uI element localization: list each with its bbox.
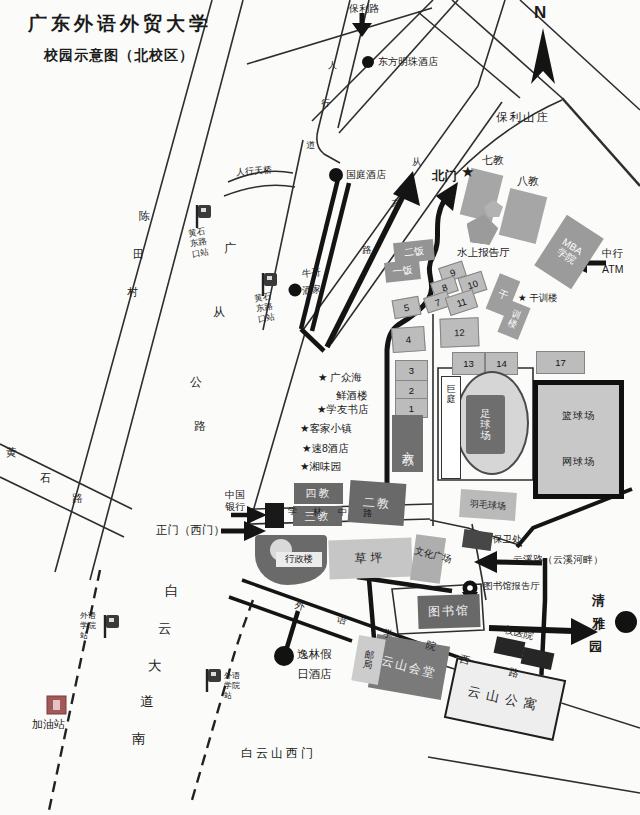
- atm-label-1: 中行: [602, 247, 623, 259]
- building-13: 13: [452, 352, 485, 375]
- huangshi-char-1: 黄: [6, 446, 17, 459]
- southeast-road-line2: [428, 757, 640, 793]
- boc-label-1: 中国: [225, 489, 245, 501]
- page-subtitle: 校园示意图（北校区）: [44, 47, 194, 63]
- star-restaurant-line2: 鲜酒楼: [336, 389, 368, 401]
- wstop1-row2: 学院: [80, 621, 96, 631]
- guangcong-char-4: 路: [194, 420, 206, 434]
- badminton-court: 羽毛球场: [459, 489, 517, 521]
- ne-road-char-3: 路: [362, 245, 372, 256]
- niuge-label-1: 牛哥: [301, 267, 321, 280]
- chentian-char-1: 陈: [139, 210, 150, 223]
- star-hakka-town: ★客家小镇: [300, 422, 351, 434]
- gas-station-icon: [47, 696, 66, 714]
- building-4-teaching: 四教: [294, 483, 343, 504]
- building-17: 17: [536, 351, 585, 374]
- building-3n: 3: [395, 360, 428, 381]
- wstop2-row2: 学院: [224, 681, 240, 691]
- library-hall-label: 图书馆报告厅: [483, 581, 540, 592]
- building-13-label: 13: [463, 358, 474, 369]
- yunshan-apt-label: 云山公寓: [466, 682, 544, 715]
- lawn-area: 草坪: [328, 538, 412, 580]
- building-2-teaching: 二教: [348, 480, 407, 526]
- water-hall-label: 水上报告厅: [457, 246, 510, 258]
- ganxun-star-label: ★ 干训楼: [518, 293, 558, 304]
- xuelin-char-2: 林: [313, 507, 322, 517]
- northeast-boundary-bold: [562, 98, 640, 186]
- baiyun-char-4: 道: [140, 694, 154, 710]
- building-5-label: 5: [403, 302, 410, 314]
- badminton-label: 羽毛球场: [470, 497, 507, 512]
- niuge-label-2: 酒家: [301, 284, 321, 297]
- building-17-label: 17: [555, 357, 566, 368]
- north-gate-label: 北门: [432, 169, 457, 183]
- building-4n-label: 4: [405, 334, 411, 345]
- bus-stop-icon-huangshi1: [197, 205, 211, 228]
- main-gate-label: 正门（西门）: [156, 524, 225, 537]
- huangshi-char-2: 石: [40, 472, 51, 485]
- gas-station-label: 加油站: [32, 718, 65, 731]
- baiyun-char-2: 云: [158, 621, 172, 637]
- bank-of-china-label: 中国 银行: [225, 489, 245, 513]
- route-lawn-to-road: [369, 579, 374, 638]
- baiyun-avenue-dashed-east: [192, 600, 253, 800]
- admin-building-label-box: 行政楼: [276, 552, 322, 567]
- canteen-1: 一饭: [384, 259, 421, 283]
- bus-stop-icon-waiyu-right: [207, 669, 221, 692]
- building-6-label: 六教: [401, 441, 414, 447]
- building-12-label: 12: [454, 327, 465, 338]
- huangshi-road-line1: [0, 444, 132, 509]
- guangcong-char-3: 公: [190, 376, 202, 390]
- ganxun-char-gan: 干: [496, 287, 511, 304]
- yunshan-hall-label: 云山会堂: [380, 652, 438, 682]
- dongfang-hotel-dot: [362, 56, 374, 68]
- security-office-label: 保卫处: [493, 534, 522, 545]
- xuelin-char-1: 学: [288, 506, 297, 516]
- building-7n-label: 7: [433, 296, 441, 308]
- football-field: 足 球 场: [466, 395, 505, 454]
- walkway-char-2: 行: [321, 98, 330, 108]
- building-7-text-label: 七教: [482, 154, 504, 167]
- baiyun-avenue-dashed-west: [48, 570, 100, 815]
- baoli-road-label: 保利路: [349, 3, 379, 15]
- star-bookstore: ★学友书店: [317, 403, 368, 415]
- bus-stop-waiyu-left-label: 外语 学院 站: [80, 611, 96, 640]
- guangcong-char-2: 从: [213, 306, 225, 320]
- stand-char-2: 庭: [447, 395, 456, 405]
- huangshi-char-3: 路: [72, 492, 83, 505]
- xuelin-char-3: 中: [338, 507, 347, 517]
- canteen-2-label: 二饭: [403, 243, 424, 259]
- grandstand-strip: 巨 庭: [441, 376, 461, 479]
- ganxun-char-lou: 楼: [506, 318, 518, 330]
- wstop1-row3: 站: [80, 631, 96, 641]
- yunxi-road-label: 云溪路（云溪河畔）: [513, 554, 603, 566]
- yilin-hotel-label-1: 逸林假: [297, 648, 332, 661]
- baiyun-char-5: 南: [132, 731, 146, 747]
- wstop1-row1: 外语: [80, 611, 96, 621]
- walkway-char-1: 人: [328, 60, 337, 70]
- yilin-hotel-dot: [274, 646, 294, 666]
- star-xiangweiyuan: ★湘味园: [300, 460, 341, 472]
- security-office-shape: [462, 529, 493, 551]
- building-8-text-label: 八教: [517, 175, 539, 188]
- wstop2-row1: 外语: [224, 671, 240, 681]
- baiyun-char-3: 大: [148, 658, 162, 674]
- qingya-char-2: 雅: [592, 617, 605, 632]
- guoting-hotel-label: 国庭酒店: [346, 169, 386, 181]
- star-restaurant-line1: ★ 广众海: [318, 371, 362, 383]
- canteen-1-label: 一饭: [392, 263, 413, 279]
- north-gate-star-icon: ★: [461, 163, 474, 180]
- baiyunshan-gate-label: 白云山西门: [241, 747, 316, 761]
- bank-of-china-building: [265, 503, 284, 528]
- ne-road-char-2: 东: [391, 199, 401, 210]
- building-11-label: 11: [455, 296, 468, 310]
- baiyun-char-1: 白: [165, 583, 179, 599]
- qingya-char-3: 园: [589, 640, 602, 655]
- guangcong-highway-east-line: [90, 0, 243, 580]
- wstop2-row3: 站: [224, 691, 240, 701]
- yilin-hotel-label-2: 日酒店: [297, 668, 332, 681]
- compass-n-label: N: [534, 3, 546, 23]
- courts-block: 篮球场 网球场: [533, 380, 624, 499]
- chentian-char-2: 田: [133, 248, 144, 261]
- ne-road-char-1: 从: [412, 157, 422, 168]
- boc-label-2: 银行: [225, 501, 245, 513]
- library-building: 图书馆: [417, 594, 480, 629]
- building-6-teaching: 六教: [392, 415, 423, 472]
- building-4n: 4: [391, 326, 426, 353]
- walkway-char-3: 道: [306, 140, 315, 150]
- campus-map: MBA 学院 干 训 楼 二饭 一饭 9 8 7 10 11 5 12 4 13…: [0, 0, 640, 815]
- building-2n-label: 2: [409, 385, 414, 396]
- route-junction-link: [301, 329, 324, 351]
- building-14-label: 14: [496, 358, 507, 369]
- building-12: 12: [440, 317, 480, 347]
- chentian-char-3: 村: [127, 286, 138, 299]
- building-1-label: 1: [409, 403, 414, 414]
- walkway-line1: [317, 0, 350, 163]
- bus-stop-waiyu-right-label: 外语 学院 站: [224, 671, 240, 700]
- football-char-3: 场: [480, 430, 491, 441]
- library-label: 图书馆: [428, 602, 471, 620]
- baoli-arrowhead: [352, 23, 372, 37]
- baoli-villa-label: 保利山庄: [496, 111, 550, 124]
- basketball-label: 篮球场: [562, 411, 595, 422]
- atm-label-2: ATM: [602, 263, 623, 275]
- tennis-label: 网球场: [562, 457, 595, 468]
- topright-road-line1: [418, 12, 520, 98]
- page-title: 广东外语外贸大学: [28, 13, 212, 35]
- building-4-label: 四教: [306, 486, 332, 501]
- guangcong-char-1: 广: [224, 242, 236, 256]
- lawn-label: 草坪: [354, 549, 387, 567]
- star-super8-hotel: ★速8酒店: [302, 442, 349, 454]
- footbridge-line2: [224, 185, 295, 196]
- qingya-char-1: 清: [592, 594, 605, 609]
- admin-label: 行政楼: [285, 553, 314, 566]
- guoting-hotel-dot: [329, 168, 343, 182]
- qingya-garden-dot: [615, 611, 637, 633]
- niuge-restaurant-dot: [289, 284, 302, 297]
- dongfang-hotel-label: 东方明珠酒店: [378, 56, 438, 68]
- huangshi-road-line2: [0, 477, 124, 537]
- bus-stop-icon-waiyu-left: [105, 615, 119, 638]
- compass-needle-icon: [531, 28, 555, 84]
- post-char-2: 局: [362, 659, 373, 671]
- xuelin-char-4: 路: [363, 508, 372, 518]
- building-3n-label: 3: [409, 365, 414, 376]
